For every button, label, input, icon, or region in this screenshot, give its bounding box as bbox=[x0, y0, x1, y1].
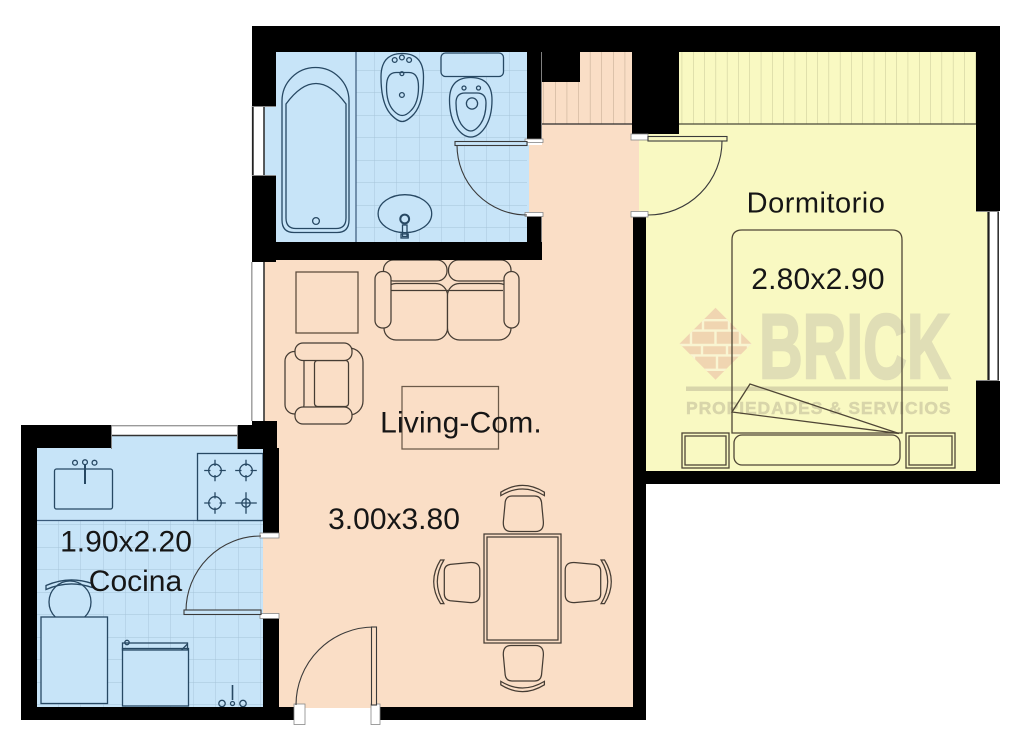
svg-text:Living-Com.: Living-Com. bbox=[380, 407, 542, 440]
svg-text:PROPIEDADES & SERVICIOS: PROPIEDADES & SERVICIOS bbox=[686, 398, 951, 418]
svg-text:2.80x2.90: 2.80x2.90 bbox=[751, 263, 885, 296]
svg-text:3.00x3.80: 3.00x3.80 bbox=[328, 503, 460, 536]
svg-text:Cocina: Cocina bbox=[89, 565, 183, 598]
svg-text:1.90x2.20: 1.90x2.20 bbox=[60, 526, 192, 559]
svg-text:Dormitorio: Dormitorio bbox=[747, 188, 886, 220]
svg-text:BRICK: BRICK bbox=[759, 296, 951, 398]
